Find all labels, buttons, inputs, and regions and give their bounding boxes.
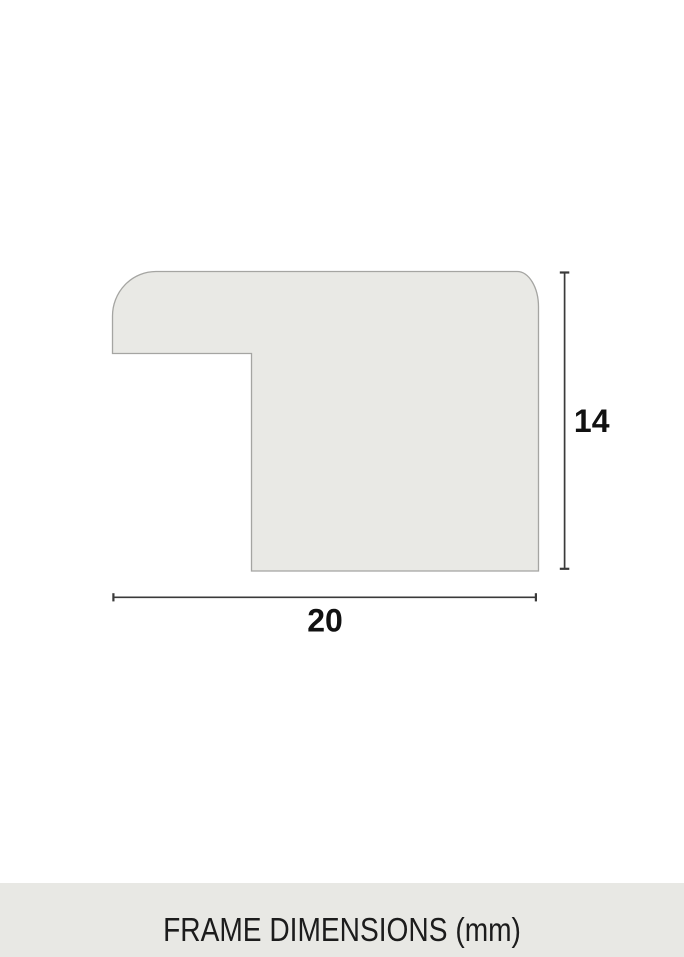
svg-text:14: 14 xyxy=(574,403,610,439)
svg-text:20: 20 xyxy=(307,603,343,639)
